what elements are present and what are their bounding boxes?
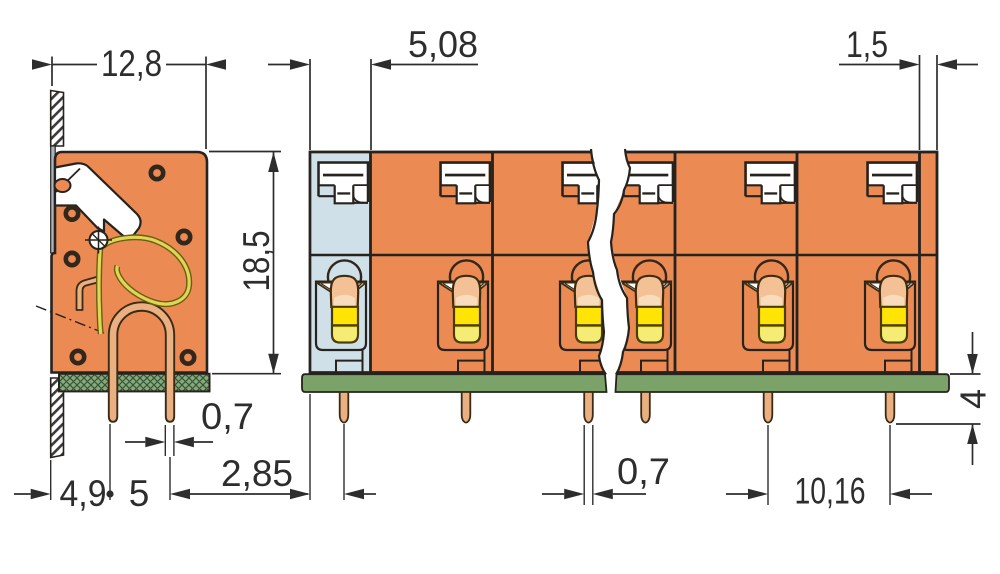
svg-text:5,08: 5,08 (408, 24, 478, 65)
svg-text:0,7: 0,7 (617, 451, 670, 492)
svg-text:18,5: 18,5 (236, 231, 277, 292)
svg-text:4,9: 4,9 (60, 473, 107, 514)
svg-text:2,85: 2,85 (221, 453, 293, 494)
svg-text:12,8: 12,8 (101, 43, 162, 84)
svg-text:5: 5 (129, 473, 150, 514)
svg-text:4: 4 (953, 389, 994, 409)
svg-text:1,5: 1,5 (846, 24, 888, 65)
svg-text:10,16: 10,16 (795, 471, 866, 512)
svg-text:0,7: 0,7 (201, 396, 254, 437)
